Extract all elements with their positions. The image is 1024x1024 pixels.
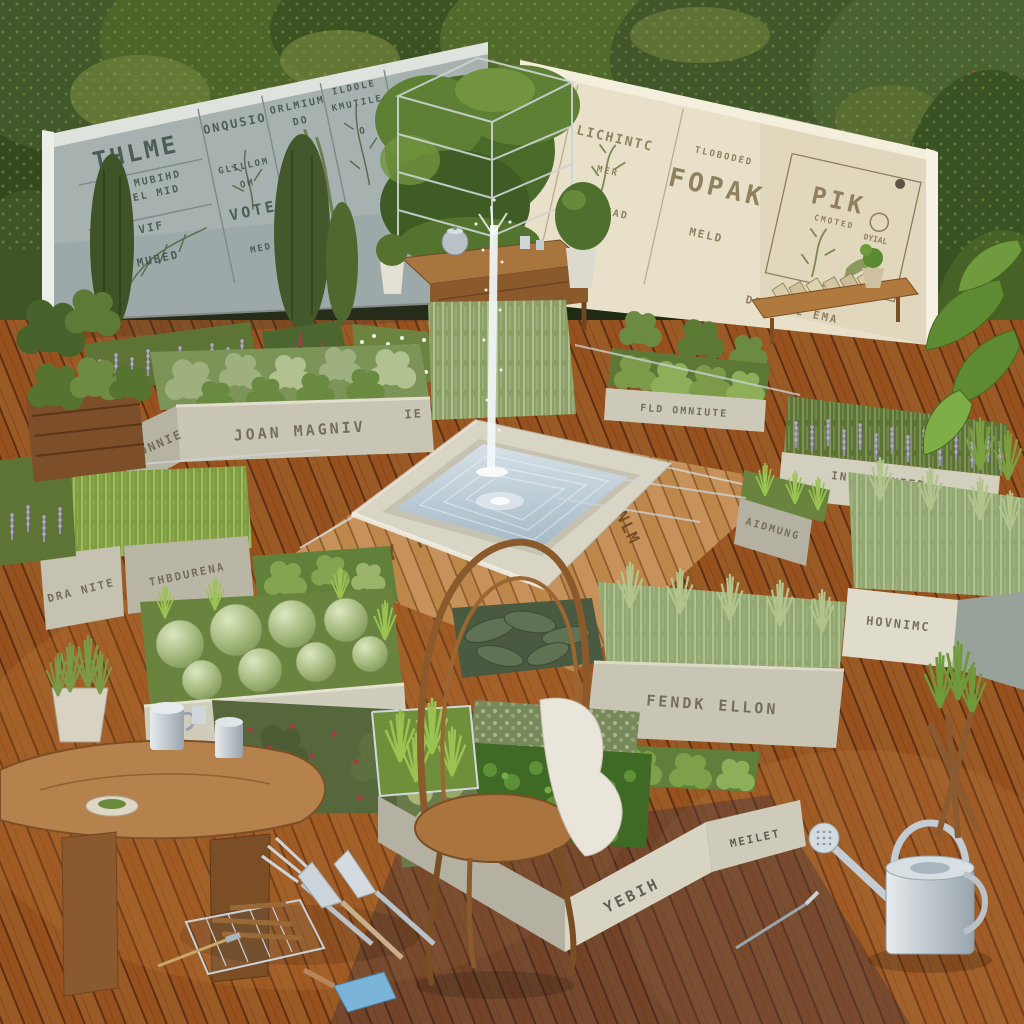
garden-illustration: THLME MLL MUBIHD MAFEL MID VIF MUBED ONQ… <box>0 0 1024 1024</box>
white-pot <box>380 262 404 294</box>
planter-label: IE <box>404 406 423 421</box>
table-plant-pot <box>52 688 108 742</box>
herb-garden-scene: THLME MLL MUBIHD MAFEL MID VIF MUBED ONQ… <box>0 0 1024 1024</box>
raised-bed-tall-grass <box>428 300 576 420</box>
can-body <box>886 868 974 954</box>
white-pot <box>566 248 596 288</box>
metal-pot <box>215 722 243 758</box>
metal-pot <box>150 708 184 750</box>
jar <box>536 240 544 250</box>
jar <box>192 706 206 724</box>
jar <box>520 236 530 249</box>
chair-seat <box>415 794 575 862</box>
